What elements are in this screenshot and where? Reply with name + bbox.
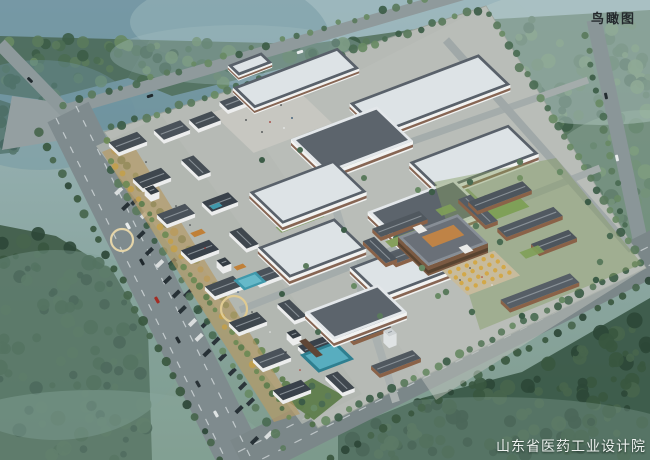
site-plan-canvas: [0, 0, 650, 460]
view-title-label: 鸟瞰图: [591, 8, 636, 27]
design-institute-label: 山东省医药工业设计院: [496, 436, 646, 456]
aerial-rendering: 鸟瞰图 山东省医药工业设计院: [0, 0, 650, 460]
